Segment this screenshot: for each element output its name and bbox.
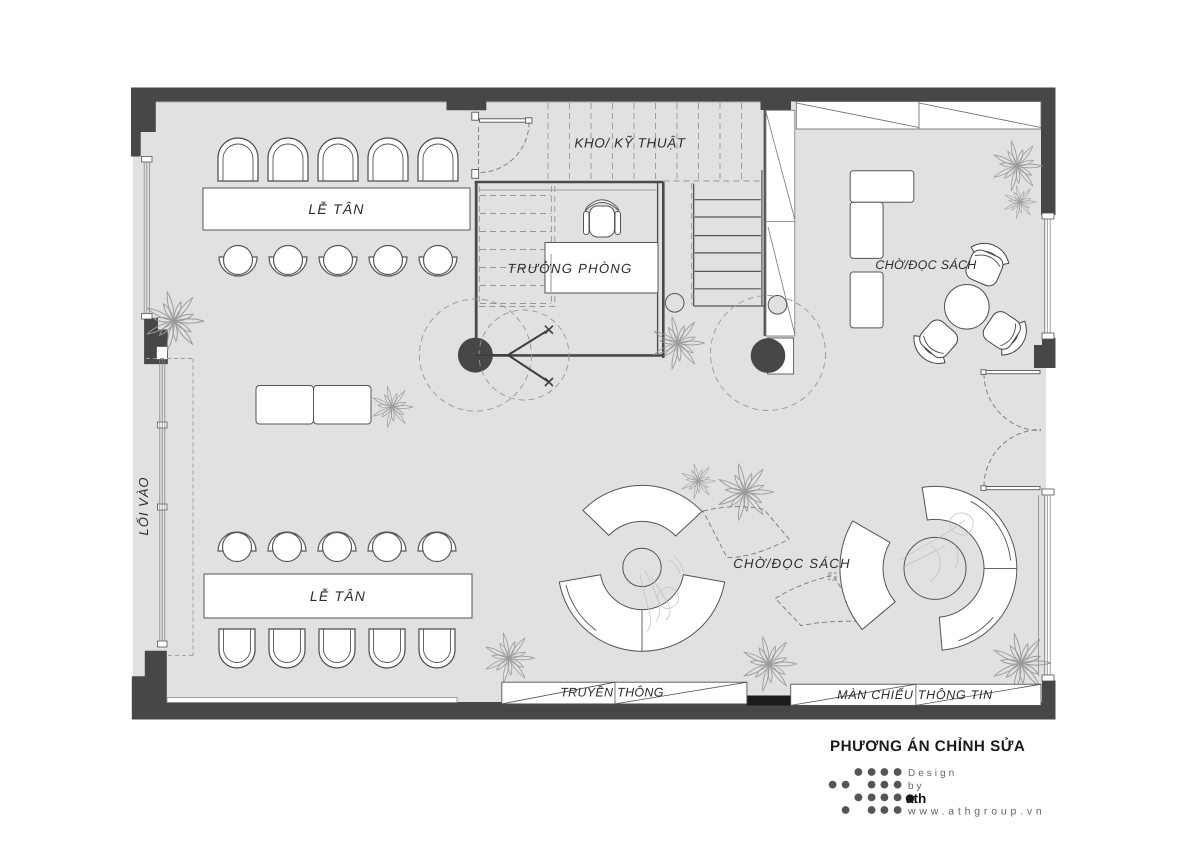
svg-text:KHO/ KỸ THUẬT: KHO/ KỸ THUẬT [574,136,686,151]
svg-text:Design: Design [908,768,957,779]
svg-text:MÀN CHIẾU THÔNG TIN: MÀN CHIẾU THÔNG TIN [837,687,993,702]
svg-text:ath: ath [906,791,926,806]
svg-text:CHỜ/ĐỌC SÁCH: CHỜ/ĐỌC SÁCH [875,258,977,272]
svg-text:TRUYỀN THÔNG: TRUYỀN THÔNG [560,685,664,700]
svg-text:CHỜ/ĐỌC SÁCH: CHỜ/ĐỌC SÁCH [733,556,850,571]
svg-text:www.athgroup.vn: www.athgroup.vn [907,806,1046,818]
svg-text:LỄ TÂN: LỄ TÂN [308,201,364,217]
svg-text:TRƯỞNG PHÒNG: TRƯỞNG PHÒNG [508,260,633,276]
svg-text:LỄ TÂN: LỄ TÂN [310,588,366,604]
svg-text:PHƯƠNG ÁN CHỈNH SỬA: PHƯƠNG ÁN CHỈNH SỬA [830,737,1025,755]
svg-text:LỐI VÀO: LỐI VÀO [136,476,151,535]
